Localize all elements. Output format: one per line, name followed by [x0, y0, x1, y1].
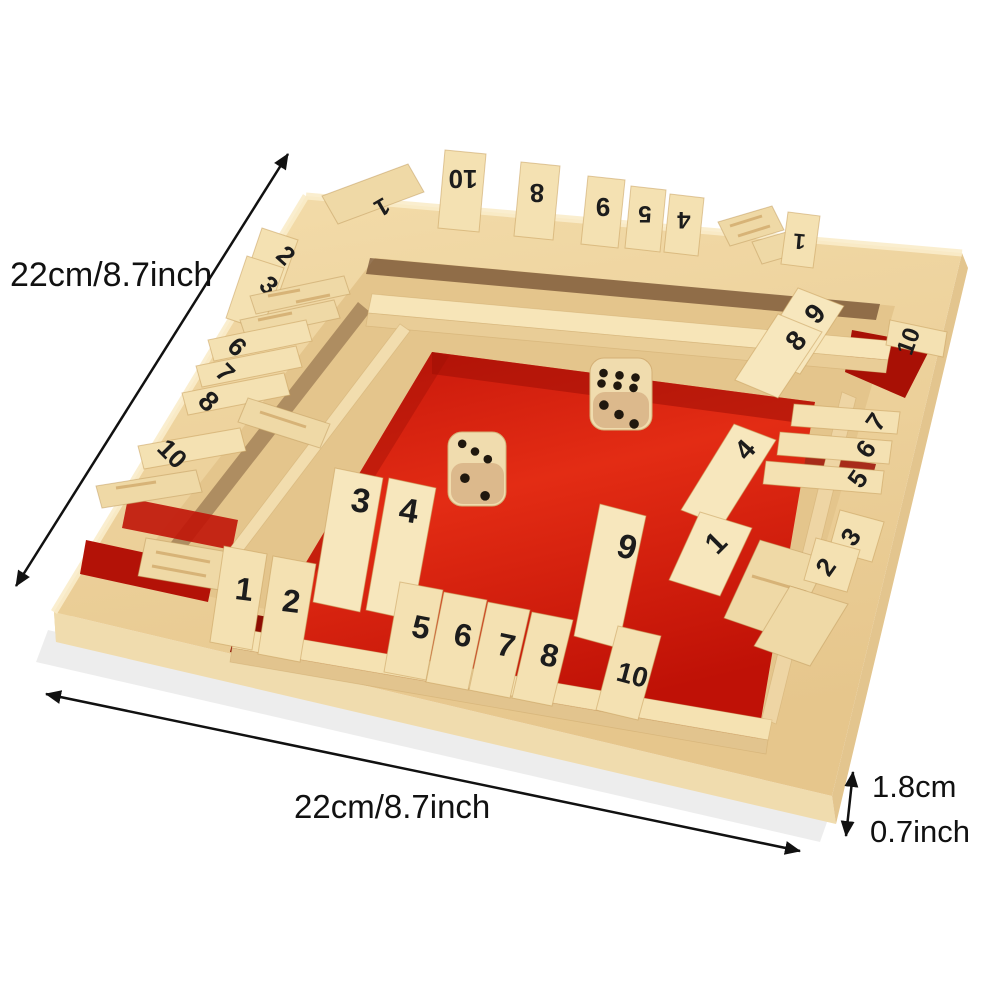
die-1: [448, 432, 506, 506]
thickness-inch-label: 0.7inch: [870, 814, 970, 849]
tile-number: 9: [596, 192, 610, 222]
shut-the-box-scene: 1 10 8 9 5 4 1 2 3: [0, 0, 1000, 1000]
die-pip: [631, 373, 640, 382]
die-pip: [613, 381, 622, 390]
die-pip: [615, 371, 624, 380]
tile-number: 1: [792, 228, 806, 254]
product-photo: 1 10 8 9 5 4 1 2 3: [0, 0, 1000, 1000]
tile-number: 10: [449, 164, 478, 194]
die-2-front-face: [593, 392, 649, 428]
die-pip: [614, 410, 624, 420]
die-pip: [460, 473, 470, 483]
die-1-front-face: [451, 463, 504, 504]
die-pip: [471, 447, 480, 456]
die-pip: [458, 440, 467, 449]
game-board: 1 10 8 9 5 4 1 2 3: [36, 150, 968, 842]
die-pip: [629, 384, 638, 393]
die-pip: [480, 491, 490, 501]
die-pip: [599, 369, 608, 378]
bottom-dimension-label: 22cm/8.7inch: [294, 788, 490, 825]
die-2: [590, 358, 652, 430]
thickness-dimension-arrow: [846, 772, 853, 836]
left-dimension-label: 22cm/8.7inch: [10, 256, 212, 294]
die-pip: [629, 419, 639, 429]
tile-number: 5: [638, 200, 651, 227]
tile-number: 8: [530, 178, 544, 208]
die-pip: [484, 455, 493, 464]
thickness-cm-label: 1.8cm: [872, 769, 956, 804]
die-pip: [597, 379, 606, 388]
die-pip: [599, 400, 609, 410]
tile-number: 4: [677, 206, 691, 233]
